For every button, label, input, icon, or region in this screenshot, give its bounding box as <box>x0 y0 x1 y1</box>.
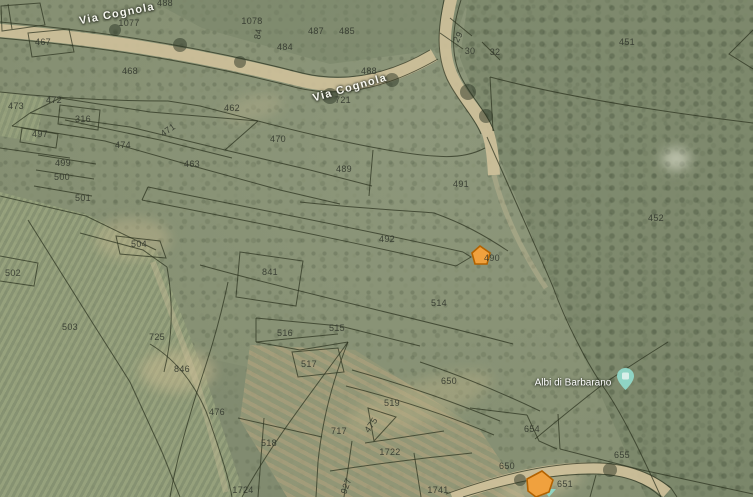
parcel-number-label: 488 <box>157 0 173 8</box>
soil-patch <box>95 218 170 260</box>
highlighted-parcel-651[interactable] <box>527 471 553 497</box>
parcel-number-label: 462 <box>224 103 240 113</box>
parcel-number-label: 468 <box>122 66 138 76</box>
parcel-number-label: 1078 <box>241 16 262 26</box>
parcel-number-label: 485 <box>339 26 355 36</box>
soil-patch <box>342 360 497 444</box>
parcel-number-label: 316 <box>75 114 91 124</box>
soil-patch <box>140 350 215 392</box>
parcel-number-label: 514 <box>431 298 447 308</box>
parcel-number-label: 841 <box>262 267 278 277</box>
parcel-number-label: 463 <box>184 159 200 169</box>
parcel-number-label: 504 <box>131 239 147 249</box>
terrain-texture <box>0 0 753 497</box>
forest-texture <box>0 0 753 497</box>
parcel-number-label: 501 <box>75 193 91 203</box>
marker-tip <box>543 489 556 497</box>
parcel-number-label: 650 <box>499 461 515 471</box>
parcel-number-label: 503 <box>62 322 78 332</box>
vineyard-field-small <box>0 0 753 497</box>
parcel-number-label: 491 <box>453 179 469 189</box>
highlighted-parcels <box>472 246 556 497</box>
parcel-number-label: 1724 <box>232 485 253 495</box>
parcel-number-label: 927 <box>339 477 354 495</box>
road-name-label: Via Cognola <box>78 1 155 27</box>
parcel-number-label: 451 <box>619 37 635 47</box>
labels-layer: 4671077488468107884487485484488721462293… <box>0 0 753 497</box>
parcel-number-label: 650 <box>441 376 457 386</box>
parcel-number-label: 488 <box>361 66 377 76</box>
parcel-number-label: 515 <box>329 323 345 333</box>
parcel-number-label: 489 <box>336 164 352 174</box>
parcel-number-label: 476 <box>209 407 225 417</box>
parcel-number-label: 473 <box>8 101 24 111</box>
parcel-number-label: 470 <box>270 134 286 144</box>
parcel-number-label: 452 <box>648 213 664 223</box>
map-pin-icon[interactable] <box>617 368 634 390</box>
parcel-number-label: 725 <box>149 332 165 342</box>
parcel-number-label: 651 <box>557 479 573 489</box>
roads-and-boundaries-overlay <box>0 0 753 497</box>
parcel-number-label: 490 <box>484 253 500 263</box>
highlighted-parcel-490[interactable] <box>472 246 490 264</box>
parcel-number-label: 519 <box>384 398 400 408</box>
parcel-number-label: 472 <box>46 95 62 105</box>
parcel-boundaries <box>0 0 753 497</box>
parcel-number-label: 1077 <box>118 18 139 28</box>
parcel-number-label: 500 <box>54 172 70 182</box>
parcel-number-label: 721 <box>335 95 351 105</box>
parcel-number-label: 492 <box>379 234 395 244</box>
tree-shadows <box>109 24 617 486</box>
forest-region-top <box>0 0 753 497</box>
satellite-base-layer <box>0 0 753 497</box>
parcel-number-label: 475 <box>362 416 379 435</box>
parcel-number-label: 499 <box>55 158 71 168</box>
road-name-label: Via Cognola <box>312 72 389 105</box>
parcel-number-label: 484 <box>277 42 293 52</box>
bright-clearing <box>662 148 690 170</box>
parcel-number-label: 487 <box>308 26 324 36</box>
vineyard-field <box>0 0 753 497</box>
parcel-number-label: 29 <box>451 30 465 44</box>
parcel-number-label: 717 <box>331 426 347 436</box>
parcel-number-label: 654 <box>524 424 540 434</box>
parcel-number-label: 467 <box>35 37 51 47</box>
parcel-number-label: 1722 <box>379 447 400 457</box>
parcel-number-label: 502 <box>5 268 21 278</box>
parcel-number-label: 518 <box>261 438 277 448</box>
parcel-number-label: 846 <box>174 364 190 374</box>
forest-region-bottom <box>0 0 753 497</box>
parcel-number-label: 497 <box>32 129 48 139</box>
soil-patch <box>220 89 286 127</box>
parcel-number-label: 474 <box>115 140 131 150</box>
forest-region <box>0 0 753 497</box>
parcel-number-label: 84 <box>252 28 264 40</box>
map-canvas[interactable]: 4671077488468107884487485484488721462293… <box>0 0 753 497</box>
parcel-number-label: 517 <box>301 359 317 369</box>
parcel-number-label: 655 <box>614 450 630 460</box>
orchard-field <box>0 0 753 497</box>
parcel-number-label: 1741 <box>427 485 448 495</box>
parcel-number-label: 471 <box>159 121 178 138</box>
parcel-number-label: 516 <box>277 328 293 338</box>
parcel-number-label: 32 <box>490 47 501 57</box>
soil-patch <box>496 462 585 497</box>
road-surfaces <box>0 0 667 497</box>
place-name-label: Albi di Barbarano <box>535 378 612 389</box>
parcel-number-label: 30 <box>465 46 476 56</box>
